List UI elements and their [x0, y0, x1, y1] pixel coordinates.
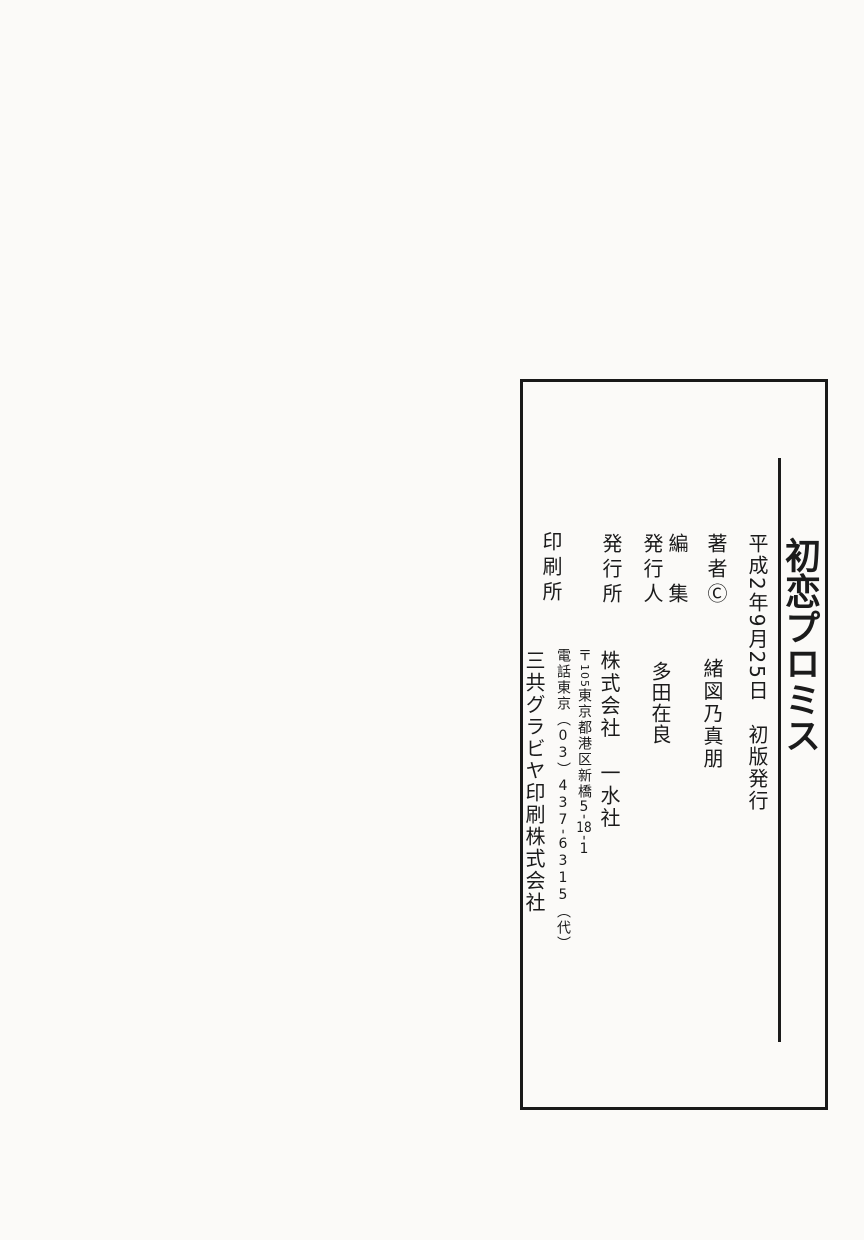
printer-name: 三共グラビヤ印刷株式会社	[524, 650, 544, 914]
publisher-postal-address: 〒105東京都港区新橋5-18-1	[577, 648, 591, 856]
publisher-name: 株式会社 一水社	[599, 650, 619, 830]
block-number-a: 5	[576, 800, 592, 814]
phone-close-paren: ）	[555, 762, 571, 778]
phone-number-b: 6315	[555, 836, 571, 904]
editor-label: 編 集	[667, 533, 687, 608]
colophon-box: 初恋プロミス 平成2年9月25日 初版発行 著者Ⓒ 編 集 発行人 発行所 印刷…	[520, 379, 828, 1110]
postal-mark: 〒	[576, 648, 592, 664]
block-number-c: 1	[576, 842, 592, 856]
scanned-book-page: 初恋プロミス 平成2年9月25日 初版発行 著者Ⓒ 編 集 発行人 発行所 印刷…	[0, 0, 864, 1240]
printer-label: 印刷所	[541, 531, 561, 606]
issuer-name: 多田在良	[650, 661, 670, 745]
publisher-label: 発行所	[601, 533, 621, 608]
copyright-mark: Ⓒ	[704, 583, 728, 604]
block-number-b: 18	[576, 821, 592, 835]
vertical-divider-rule	[778, 458, 781, 1042]
phone-open-paren: （	[555, 712, 571, 728]
phone-area-code: 03	[555, 728, 571, 762]
phone-prefix: 電話東京	[555, 648, 571, 712]
author-label-text: 著者	[704, 533, 728, 583]
author-name: 緒図乃真朋	[702, 658, 722, 771]
block-separator-1: -	[576, 814, 592, 821]
phone-note: （代）	[555, 904, 571, 952]
edition-date-line: 平成2年9月25日 初版発行	[747, 533, 767, 812]
book-title: 初恋プロミス	[781, 537, 817, 753]
issuer-label: 発行人	[642, 533, 662, 608]
postal-code: 105	[578, 664, 591, 688]
publisher-phone: 電話東京（03）437-6315（代）	[556, 648, 570, 952]
phone-separator: -	[555, 829, 571, 836]
author-label: 著者Ⓒ	[706, 533, 726, 604]
phone-number-a: 437	[555, 778, 571, 829]
street-text: 東京都港区新橋	[576, 688, 592, 800]
